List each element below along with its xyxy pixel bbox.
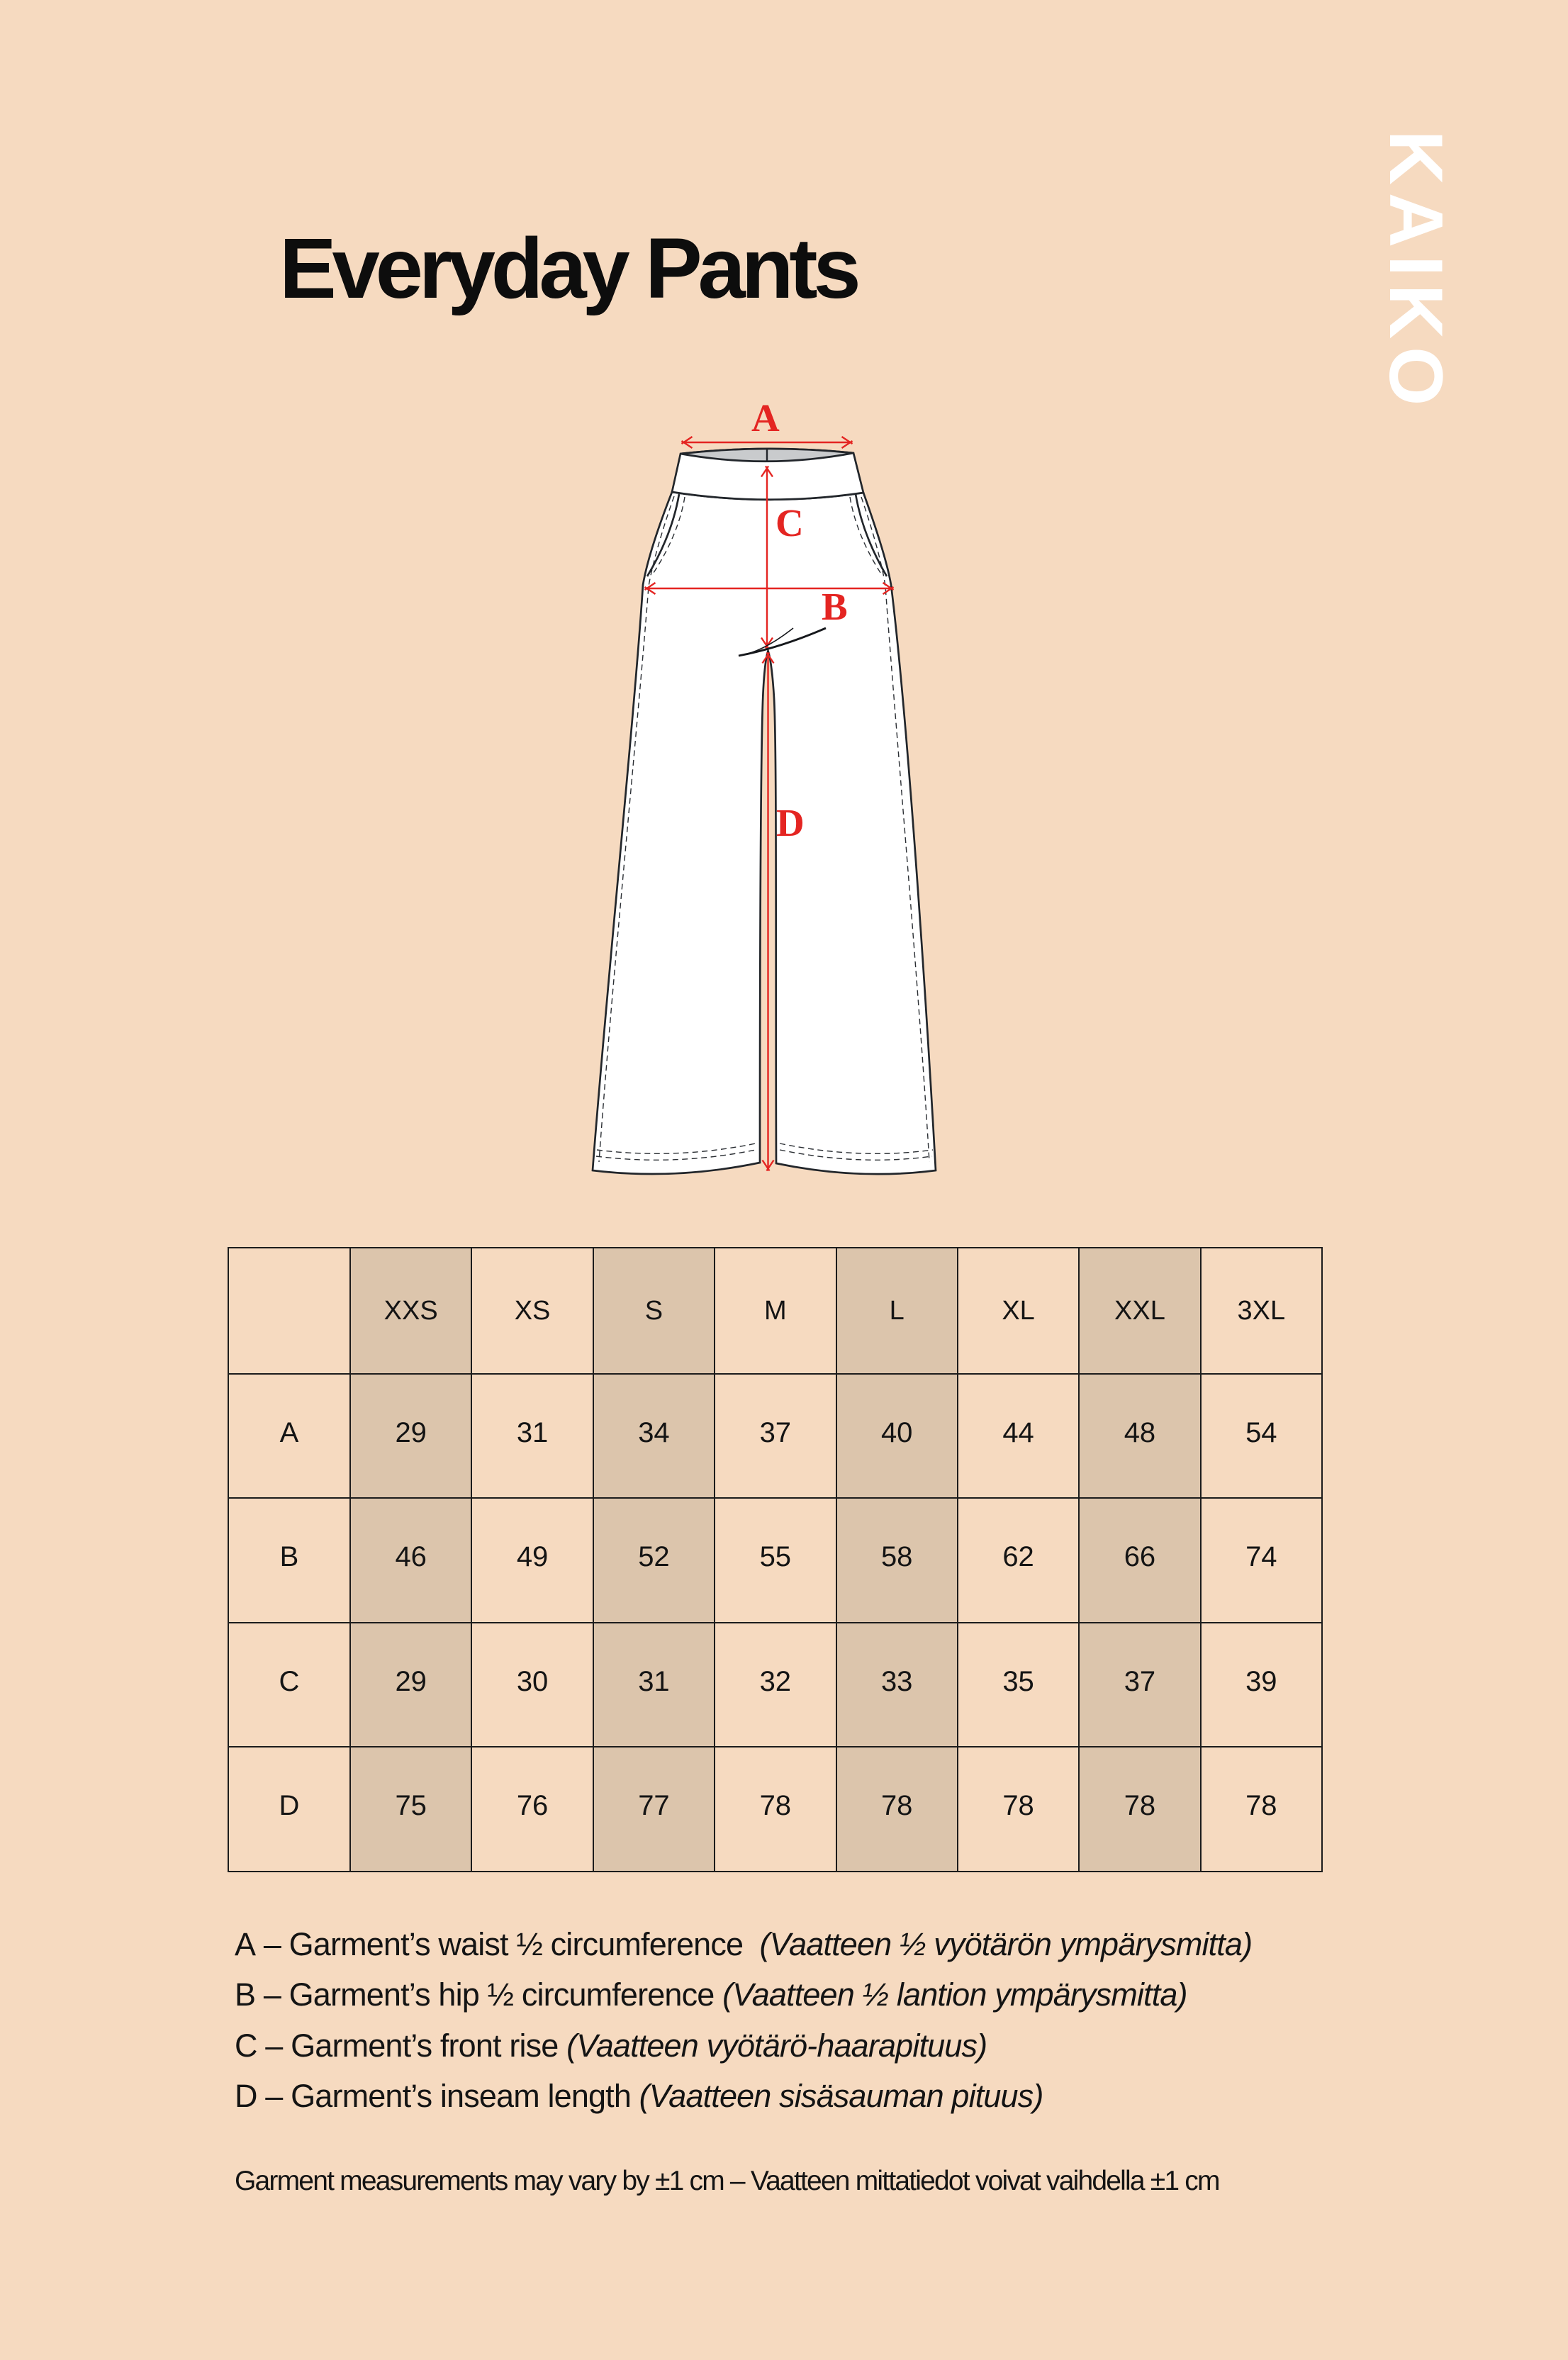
svg-text:D: D [776,801,805,844]
svg-text:A: A [751,396,780,440]
svg-text:B: B [822,585,848,628]
svg-text:C: C [775,501,804,544]
